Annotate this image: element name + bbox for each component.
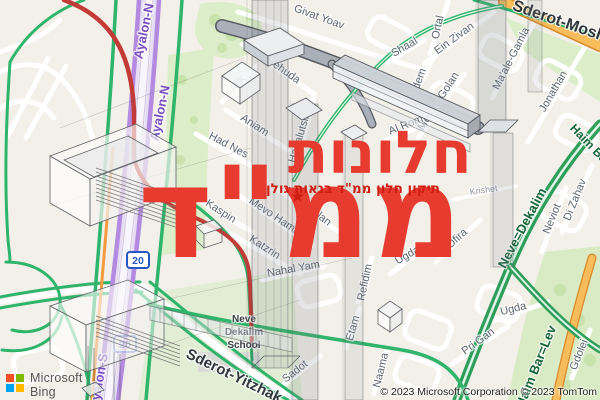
logo-square [6,384,14,392]
microsoft-logo-icon [6,374,24,392]
street-label: Ortal [430,14,447,40]
route-shield-20: 20 [127,252,149,268]
street-label: Shaal [389,35,419,59]
logo-square [6,374,14,382]
street-label: Givat Yoav [292,3,346,32]
svg-text:20: 20 [132,255,144,267]
location-star-icon[interactable]: ★ [290,188,305,205]
logo-product-text: Bing [30,385,83,399]
street-label: Kaspin [203,197,238,225]
bing-logo[interactable]: Microsoft Bing [6,371,83,399]
logo-square [16,374,24,382]
logo-brand-text: Microsoft [30,371,83,385]
bing-map-canvas[interactable]: 2020 Ayalon-NAyalon-NAyalon-SGivat YoavO… [0,0,600,400]
logo-square [16,384,24,392]
street-label: Naama [371,351,391,389]
map-copyright: © 2023 Microsoft Corporation © 2023 TomT… [380,386,597,398]
